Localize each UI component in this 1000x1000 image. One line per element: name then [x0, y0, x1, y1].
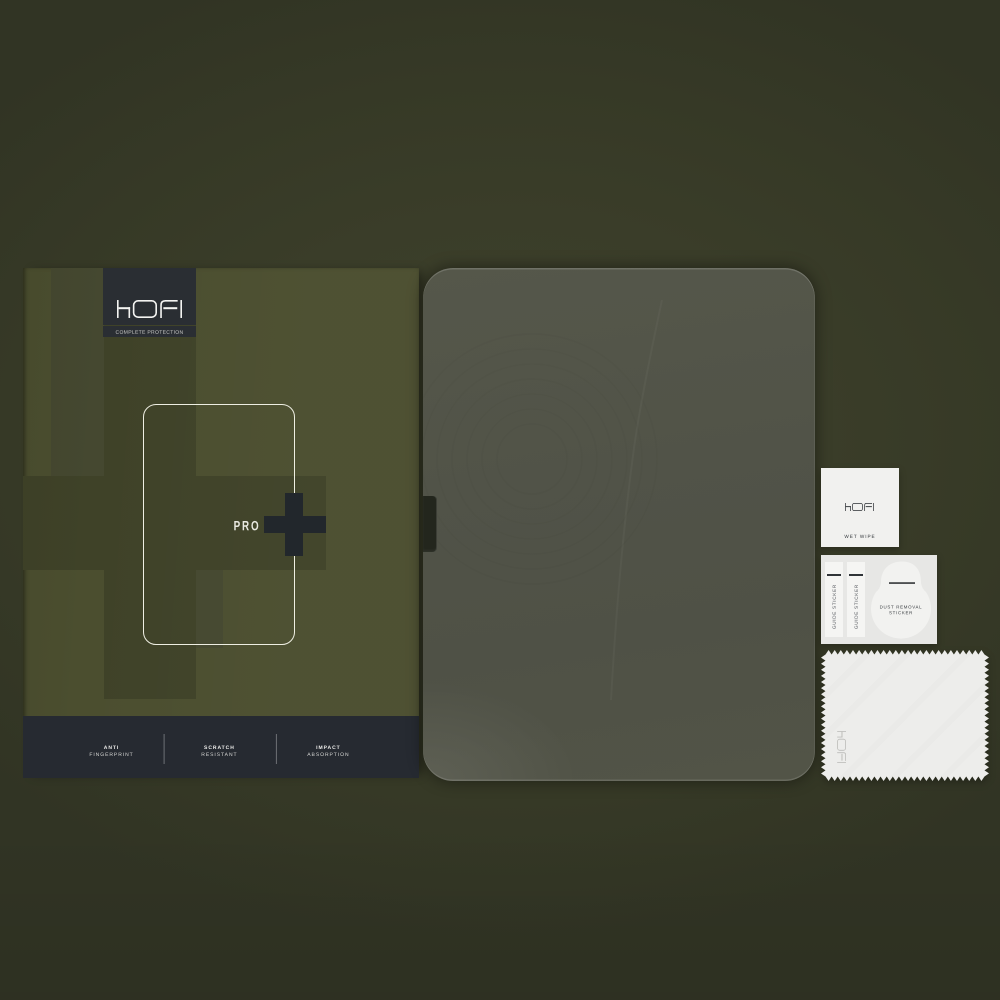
svg-text:FINGERPRINT: FINGERPRINT	[89, 752, 133, 758]
svg-text:IMPACT: IMPACT	[316, 745, 341, 751]
svg-text:SCRATCH: SCRATCH	[204, 745, 235, 751]
svg-text:ABSORPTION: ABSORPTION	[307, 752, 349, 758]
svg-text:RESISTANT: RESISTANT	[201, 752, 237, 758]
svg-text:PRO: PRO	[234, 518, 261, 533]
svg-text:STICKER: STICKER	[889, 610, 913, 615]
svg-text:ANTI: ANTI	[104, 745, 119, 751]
svg-text:WET WIPE: WET WIPE	[844, 534, 875, 539]
svg-text:COMPLETE PROTECTION: COMPLETE PROTECTION	[116, 330, 184, 336]
svg-text:DUST REMOVAL: DUST REMOVAL	[880, 604, 923, 609]
svg-text:GUIDE STICKER: GUIDE STICKER	[854, 584, 859, 629]
svg-text:GUIDE STICKER: GUIDE STICKER	[832, 584, 837, 629]
